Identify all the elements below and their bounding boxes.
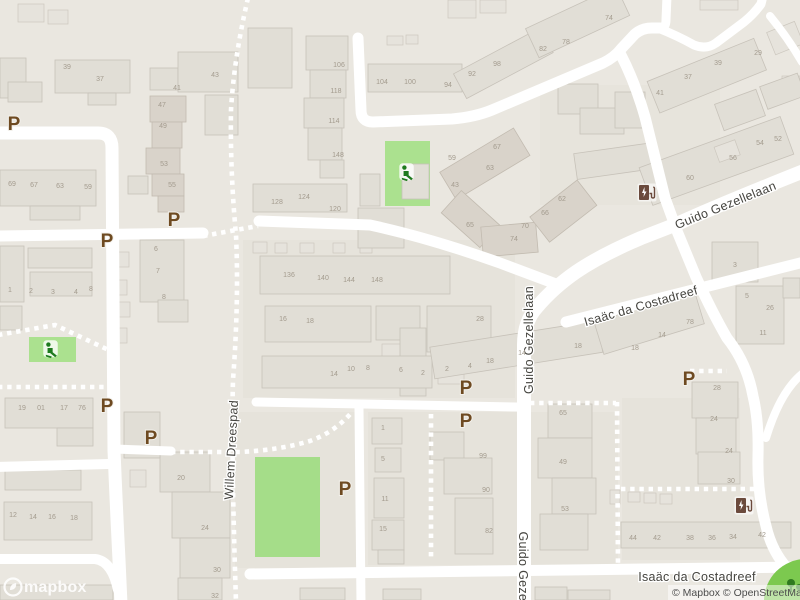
svg-text:74: 74	[510, 236, 518, 243]
svg-text:39: 39	[63, 64, 71, 71]
svg-text:140: 140	[317, 275, 329, 282]
svg-text:63: 63	[56, 183, 64, 190]
svg-text:6: 6	[399, 367, 403, 374]
svg-text:11: 11	[381, 496, 388, 503]
svg-text:P: P	[101, 231, 114, 252]
svg-text:P: P	[101, 396, 114, 417]
svg-text:78: 78	[562, 39, 570, 46]
svg-text:56: 56	[729, 155, 737, 162]
svg-text:01: 01	[37, 405, 45, 412]
svg-text:18: 18	[574, 343, 582, 350]
svg-text:59: 59	[448, 155, 456, 162]
svg-text:53: 53	[561, 506, 569, 513]
svg-text:P: P	[168, 210, 181, 231]
svg-text:148: 148	[371, 277, 383, 284]
svg-text:41: 41	[173, 85, 181, 92]
svg-text:8: 8	[89, 286, 93, 293]
svg-text:14: 14	[658, 332, 666, 339]
svg-text:18: 18	[306, 318, 314, 325]
svg-text:90: 90	[482, 487, 490, 494]
svg-text:P: P	[460, 411, 473, 432]
svg-text:26: 26	[766, 305, 774, 312]
svg-text:6: 6	[154, 246, 158, 253]
svg-text:104: 104	[376, 79, 388, 86]
svg-text:69: 69	[8, 181, 16, 188]
svg-text:20: 20	[177, 475, 185, 482]
svg-text:14: 14	[330, 371, 338, 378]
svg-text:14: 14	[29, 514, 37, 521]
svg-text:128: 128	[271, 199, 283, 206]
svg-text:53: 53	[160, 161, 168, 168]
svg-text:16: 16	[279, 316, 287, 323]
svg-text:32: 32	[211, 593, 219, 600]
svg-text:78: 78	[686, 319, 694, 326]
svg-text:63: 63	[486, 165, 494, 172]
svg-text:15: 15	[379, 526, 387, 533]
svg-text:37: 37	[96, 76, 104, 83]
svg-text:P: P	[145, 428, 158, 449]
svg-text:29: 29	[754, 50, 762, 57]
svg-text:5: 5	[381, 456, 385, 463]
svg-text:18: 18	[631, 345, 639, 352]
svg-text:60: 60	[686, 175, 694, 182]
svg-text:24: 24	[201, 525, 209, 532]
svg-text:30: 30	[213, 567, 221, 574]
svg-text:2: 2	[29, 288, 33, 295]
svg-text:106: 106	[333, 62, 345, 69]
svg-text:144: 144	[343, 277, 355, 284]
svg-text:19: 19	[18, 405, 26, 412]
svg-text:P: P	[683, 369, 696, 390]
svg-text:43: 43	[451, 182, 459, 189]
svg-text:66: 66	[541, 210, 549, 217]
svg-text:41: 41	[656, 90, 664, 97]
svg-text:99: 99	[479, 453, 487, 460]
svg-text:24: 24	[710, 416, 718, 423]
svg-text:2: 2	[421, 370, 425, 377]
svg-text:18: 18	[486, 358, 494, 365]
svg-text:Isaäc da Costadreef: Isaäc da Costadreef	[638, 570, 756, 584]
svg-text:36: 36	[708, 535, 716, 542]
svg-text:38: 38	[686, 535, 694, 542]
svg-text:39: 39	[714, 60, 722, 67]
svg-text:5: 5	[745, 293, 749, 300]
svg-text:12: 12	[9, 512, 17, 519]
svg-text:67: 67	[493, 144, 501, 151]
svg-text:P: P	[460, 378, 473, 399]
svg-text:Guido Gezelle: Guido Gezelle	[516, 531, 530, 600]
svg-text:© Mapbox © OpenStreetMap: © Mapbox © OpenStreetMap	[672, 587, 800, 599]
svg-text:94: 94	[444, 82, 452, 89]
svg-text:4: 4	[468, 363, 472, 370]
svg-text:1: 1	[8, 287, 12, 294]
svg-text:2: 2	[445, 366, 449, 373]
svg-text:14: 14	[518, 350, 526, 357]
svg-text:8: 8	[162, 294, 166, 301]
svg-text:34: 34	[729, 534, 737, 541]
svg-text:4: 4	[74, 289, 78, 296]
svg-text:37: 37	[684, 74, 692, 81]
svg-text:76: 76	[78, 405, 86, 412]
svg-text:67: 67	[30, 182, 38, 189]
svg-text:74: 74	[605, 15, 613, 22]
svg-text:Guido Gezellelaan: Guido Gezellelaan	[522, 286, 536, 394]
svg-text:114: 114	[328, 118, 339, 125]
svg-text:P: P	[8, 114, 21, 135]
svg-text:24: 24	[725, 448, 733, 455]
svg-text:65: 65	[559, 410, 567, 417]
svg-text:18: 18	[70, 515, 78, 522]
svg-text:49: 49	[159, 123, 167, 130]
svg-text:70: 70	[521, 223, 529, 230]
svg-text:44: 44	[629, 535, 637, 542]
svg-text:54: 54	[756, 140, 764, 147]
svg-text:100: 100	[404, 79, 416, 86]
svg-text:59: 59	[84, 184, 92, 191]
svg-text:17: 17	[60, 405, 68, 412]
svg-text:65: 65	[466, 222, 474, 229]
svg-text:136: 136	[283, 272, 295, 279]
svg-text:7: 7	[156, 268, 160, 275]
svg-text:82: 82	[539, 46, 547, 53]
svg-text:82: 82	[485, 528, 493, 535]
svg-text:62: 62	[558, 196, 566, 203]
svg-text:55: 55	[168, 182, 176, 189]
svg-text:52: 52	[774, 136, 782, 143]
svg-text:28: 28	[476, 316, 484, 323]
svg-text:98: 98	[493, 61, 501, 68]
svg-text:11: 11	[759, 330, 766, 337]
svg-text:28: 28	[713, 385, 721, 392]
svg-text:3: 3	[51, 289, 55, 296]
svg-text:16: 16	[48, 514, 56, 521]
svg-text:47: 47	[158, 102, 166, 109]
svg-text:92: 92	[468, 71, 476, 78]
svg-text:10: 10	[347, 366, 355, 373]
svg-text:42: 42	[758, 532, 766, 539]
svg-text:42: 42	[653, 535, 661, 542]
svg-text:43: 43	[211, 72, 219, 79]
svg-text:118: 118	[330, 88, 341, 95]
svg-text:1: 1	[381, 425, 385, 432]
svg-text:148: 148	[332, 152, 344, 159]
svg-text:120: 120	[329, 206, 341, 213]
svg-text:8: 8	[366, 365, 370, 372]
svg-text:mapbox: mapbox	[24, 579, 87, 596]
svg-text:49: 49	[559, 459, 567, 466]
svg-text:3: 3	[733, 262, 737, 269]
svg-text:30: 30	[727, 478, 735, 485]
svg-text:P: P	[339, 479, 352, 500]
svg-text:124: 124	[298, 194, 310, 201]
